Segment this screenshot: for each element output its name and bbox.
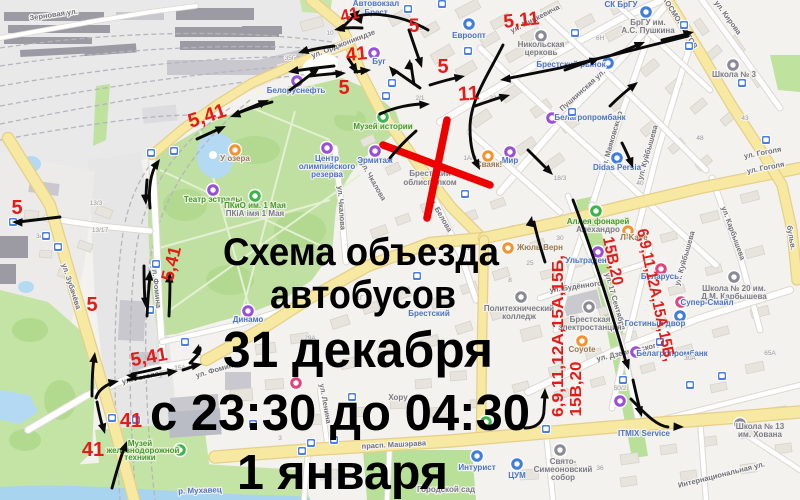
svg-text:11: 11: [457, 82, 480, 105]
svg-text:Музей истории: Музей истории: [353, 122, 412, 131]
svg-text:Интурист: Интурист: [458, 463, 495, 472]
svg-text:ПКіА імя 1 Мая: ПКіА імя 1 Мая: [226, 209, 285, 218]
svg-text:10: 10: [326, 30, 334, 37]
svg-text:41: 41: [120, 410, 142, 432]
svg-text:Школа № 3: Школа № 3: [712, 70, 757, 79]
svg-text:Супер-Смайл: Супер-Смайл: [680, 298, 733, 307]
svg-text:5: 5: [437, 56, 448, 78]
svg-text:Coyote: Coyote: [568, 345, 596, 354]
svg-text:ЦУМ: ЦУМ: [508, 471, 526, 480]
svg-text:собор: собор: [551, 473, 575, 482]
svg-text:41: 41: [82, 439, 104, 461]
svg-text:техники: техники: [124, 453, 155, 462]
svg-text:Didas Persia: Didas Persia: [593, 163, 642, 172]
svg-text:ITMIX Service: ITMIX Service: [618, 429, 671, 438]
svg-text:30А: 30А: [684, 355, 696, 362]
svg-text:6Н: 6Н: [596, 35, 605, 42]
svg-text:25: 25: [526, 260, 534, 267]
svg-text:40: 40: [636, 180, 644, 187]
svg-text:31 декабря: 31 декабря: [223, 321, 493, 378]
svg-text:Евроопт: Евроопт: [452, 31, 486, 40]
svg-text:5: 5: [338, 77, 349, 99]
svg-text:5: 5: [86, 294, 97, 316]
svg-text:Буг: Буг: [372, 57, 386, 66]
svg-text:1 января: 1 января: [237, 446, 448, 500]
svg-text:30: 30: [556, 235, 564, 242]
svg-text:5: 5: [409, 16, 420, 37]
svg-text:5: 5: [11, 197, 22, 219]
svg-text:р. Мухавец: р. Мухавец: [178, 485, 222, 496]
svg-text:Белагропромбанк: Белагропромбанк: [554, 113, 626, 122]
svg-text:резерва: резерва: [311, 170, 343, 179]
svg-text:8: 8: [508, 277, 512, 284]
svg-text:36: 36: [596, 465, 604, 472]
svg-text:18/3: 18/3: [554, 175, 567, 182]
svg-text:им. Хована: им. Хована: [738, 430, 782, 439]
svg-text:41: 41: [345, 43, 369, 66]
svg-text:церковь: церковь: [525, 48, 558, 57]
svg-text:У озера: У озера: [220, 154, 250, 163]
svg-text:6,9,11,12А,15А,15Б,: 6,9,11,12А,15А,15Б,: [550, 255, 567, 417]
svg-text:Автовокзал: Автовокзал: [353, 0, 399, 8]
svg-text:Схема объезда: Схема объезда: [223, 231, 499, 274]
svg-text:с 23:30 до 04:30: с 23:30 до 04:30: [150, 384, 530, 441]
svg-text:15В,20: 15В,20: [568, 361, 585, 416]
svg-text:автобусов: автобусов: [270, 273, 456, 317]
svg-text:13/3: 13/3: [90, 200, 103, 207]
svg-text:5,11: 5,11: [502, 8, 540, 33]
svg-text:Эрмитаж: Эрмитаж: [357, 156, 393, 165]
svg-text:СК БрГУ: СК БрГУ: [604, 0, 638, 9]
svg-text:48: 48: [696, 135, 704, 142]
svg-text:43: 43: [741, 115, 749, 122]
svg-text:колледж: колледж: [502, 312, 536, 321]
svg-text:35Г: 35Г: [285, 55, 296, 62]
svg-text:65А: 65А: [764, 350, 776, 357]
svg-text:Мир: Мир: [502, 156, 519, 165]
svg-text:13/17: 13/17: [92, 227, 109, 234]
svg-text:А.С. Пушкина: А.С. Пушкина: [621, 26, 675, 35]
svg-text:электростанция: электростанция: [558, 323, 622, 332]
svg-text:50/2: 50/2: [614, 385, 627, 392]
